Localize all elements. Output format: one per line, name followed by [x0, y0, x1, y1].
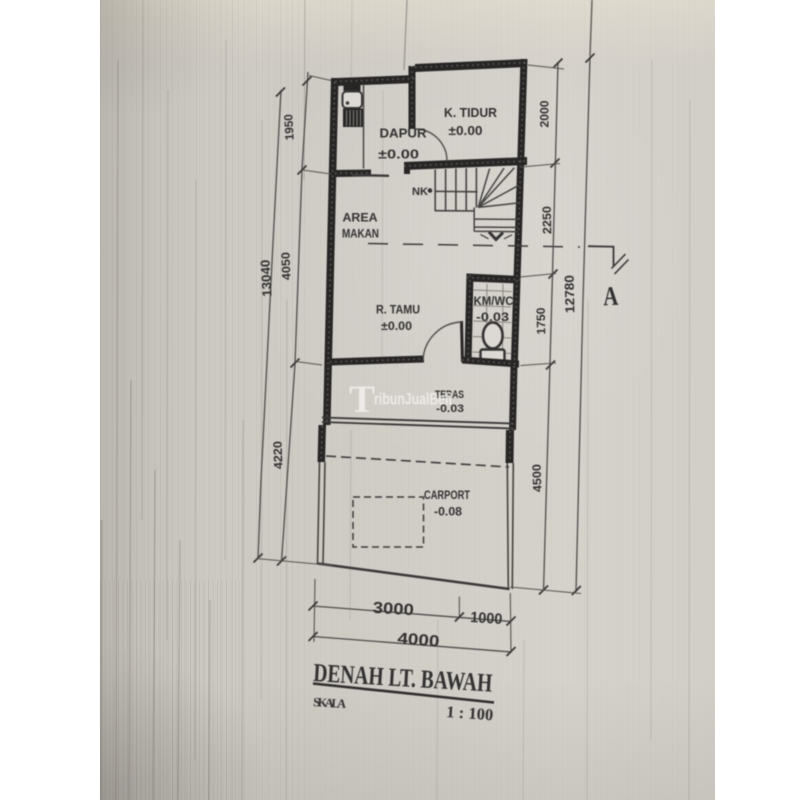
svg-text:1750: 1750 [534, 307, 548, 335]
svg-text:CARPORT: CARPORT [424, 488, 471, 502]
svg-text:NK: NK [412, 186, 428, 198]
svg-text:MAKAN: MAKAN [342, 229, 379, 241]
svg-text:±0.00: ±0.00 [449, 124, 483, 138]
svg-text:R. TAMU: R. TAMU [376, 303, 420, 317]
svg-text:13040: 13040 [258, 259, 275, 297]
svg-text:±0.00: ±0.00 [381, 319, 412, 333]
svg-text:2000: 2000 [538, 100, 552, 127]
svg-text:-0.08: -0.08 [434, 507, 463, 519]
svg-text:K. TIDUR: K. TIDUR [444, 106, 497, 120]
svg-text:SKALA: SKALA [313, 695, 347, 711]
svg-text:KM/WC: KM/WC [474, 296, 514, 308]
svg-text:4050: 4050 [279, 252, 294, 281]
svg-text:4220: 4220 [271, 441, 286, 470]
svg-text:-0.03: -0.03 [476, 312, 509, 324]
svg-text:2250: 2250 [540, 206, 554, 235]
svg-text:1950: 1950 [281, 114, 296, 141]
svg-text:T: T [349, 378, 375, 421]
svg-text:AREA: AREA [343, 213, 378, 225]
svg-text:ribunJualBeli: ribunJualBeli [374, 391, 452, 409]
svg-text:±0.00: ±0.00 [378, 148, 419, 162]
svg-text:A: A [603, 281, 619, 312]
svg-text:12780: 12780 [562, 275, 578, 313]
svg-text:4500: 4500 [530, 464, 545, 493]
svg-text:3000: 3000 [372, 600, 414, 619]
svg-text:4000: 4000 [397, 630, 440, 650]
svg-text:1000: 1000 [470, 609, 503, 628]
svg-text:1 : 100: 1 : 100 [446, 702, 494, 724]
svg-text:DAPUR: DAPUR [380, 126, 428, 141]
